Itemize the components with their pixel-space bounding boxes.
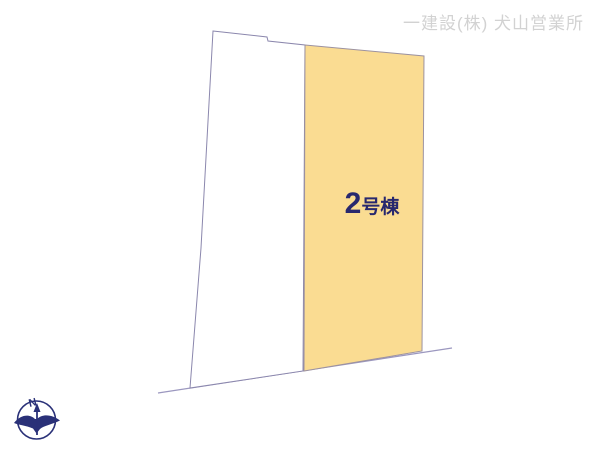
site-plan-drawing: N: [0, 0, 600, 450]
parcel-outline-left: [190, 31, 305, 388]
building-label: 2号棟: [312, 186, 432, 227]
compass-north-letter: N: [27, 396, 38, 410]
building-number: 2: [345, 187, 362, 220]
building-suffix: 号棟: [361, 197, 399, 218]
compass-north-icon: N: [14, 396, 60, 439]
site-plan-page: 一建設(株) 犬山営業所 N 2号棟: [0, 0, 600, 450]
